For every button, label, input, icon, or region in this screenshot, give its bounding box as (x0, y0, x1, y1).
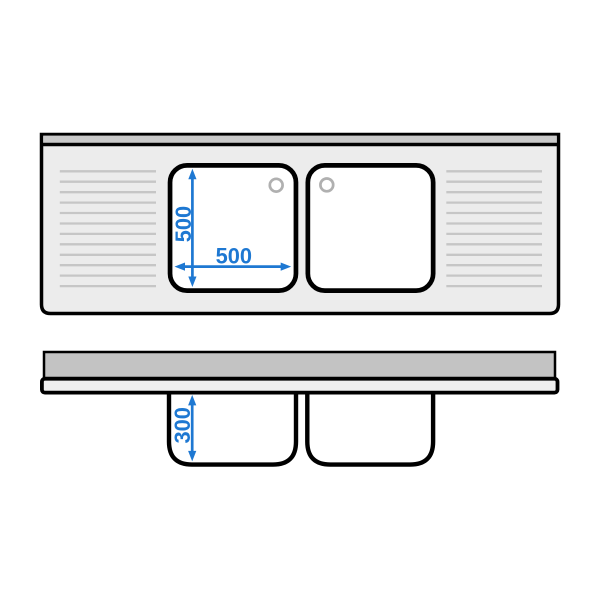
svg-text:500: 500 (171, 206, 196, 242)
svg-text:500: 500 (216, 243, 252, 268)
svg-text:300: 300 (170, 407, 195, 443)
